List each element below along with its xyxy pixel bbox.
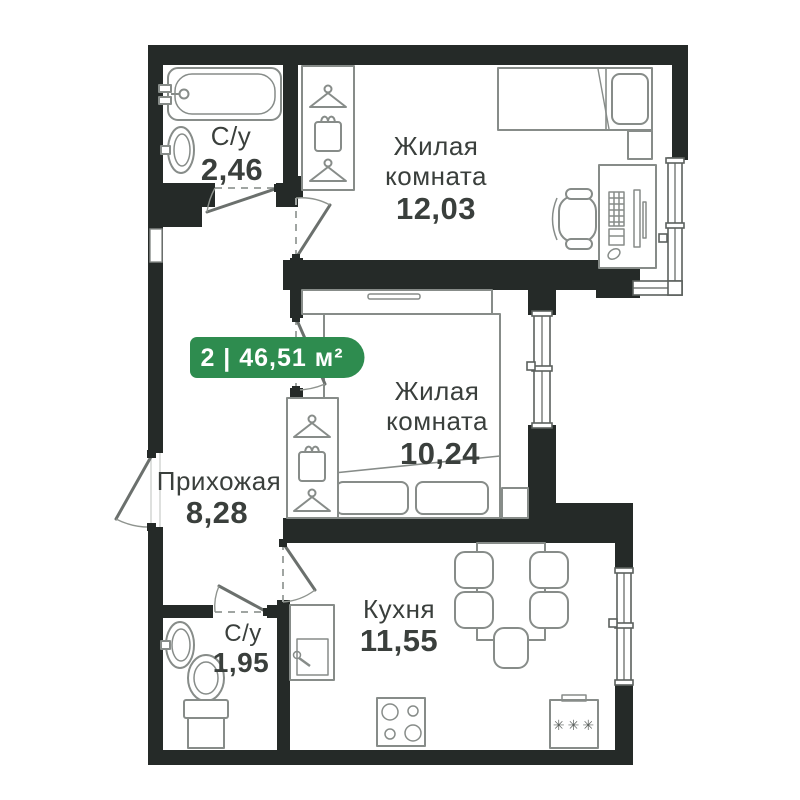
wall-between-rooms [283,260,640,290]
bathroom-bottom [161,622,228,748]
wall-kitchen-step [556,503,633,518]
door-living-top [292,198,330,262]
wardrobe-top [302,66,354,190]
room-area-hallway: 8,28 [186,495,248,530]
wall-bath-top-right [283,65,298,183]
fridge-marks: ✳✳✳ [553,717,597,733]
door-bath-bottom [215,586,271,616]
wall-kitchen-right-2 [615,683,633,750]
room-label-bath-bottom: С/у [224,620,262,647]
chair-icon [530,552,568,588]
window-kitchen [609,568,633,685]
kitchen-sink-icon [290,605,334,680]
floor-plan-svg: ✳✳✳ [0,0,800,800]
room-label-kitchen: Кухня [363,594,435,624]
room-area-living-top: 12,03 [396,191,476,226]
wall-right-upper [672,45,688,160]
wall-living-mid-right-2 [528,425,556,520]
sink-icon [161,622,194,668]
door-kitchen [279,539,315,602]
room-label-living-mid-2: комната [386,406,488,436]
wardrobe-hallway [287,398,338,518]
dining-set [455,543,568,668]
room-area-kitchen: 11,55 [360,623,438,658]
sink-icon [161,127,194,173]
entrance-door [116,450,160,531]
room-label-living-mid-1: Жилая [395,376,480,406]
storage-box-icon [299,447,325,481]
chair-icon [530,592,568,628]
single-bed-icon [498,68,652,130]
room-label-hallway: Прихожая [157,466,281,496]
chair-icon [455,552,493,588]
chair-icon [494,628,528,668]
room-area-bath-top: 2,46 [201,152,263,187]
room-label-bath-top: С/у [211,121,252,151]
wall-top [148,45,688,65]
room-area-living-mid: 10,24 [400,436,480,471]
wall-bath-kitchen-divider [277,605,290,750]
room-area-bath-bottom: 1,95 [213,647,270,678]
chair-icon [455,592,493,628]
wall-kitchen-top [283,518,633,543]
kitchen-furniture: ✳✳✳ [290,543,598,748]
sideboard-icon [302,290,492,314]
nightstand-icon [502,488,528,518]
storage-box-icon [315,117,341,151]
area-badge: 2 | 46,51 м² [190,337,365,378]
floor-plan: ✳✳✳ [0,0,800,800]
window-living-mid [527,311,552,428]
pillow [612,74,648,124]
living-top-furniture [498,68,656,268]
office-chair-icon [553,189,597,249]
wall-niche [150,229,162,262]
door-bath-top [207,184,282,212]
wall-bottom [148,750,633,765]
pillow [336,482,408,514]
fridge-icon: ✳✳✳ [550,695,598,748]
room-label-living-top-1: Жилая [394,131,479,161]
badge-label: 2 | 46,51 м² [200,344,343,372]
desk-icon [599,165,656,268]
nightstand-icon [628,131,652,159]
stove-icon [377,698,425,746]
room-label-living-top-2: комната [385,161,487,191]
pillow [416,482,488,514]
wall-bath-bottom-1 [163,605,213,618]
wall-kitchen-right-1 [615,530,633,572]
